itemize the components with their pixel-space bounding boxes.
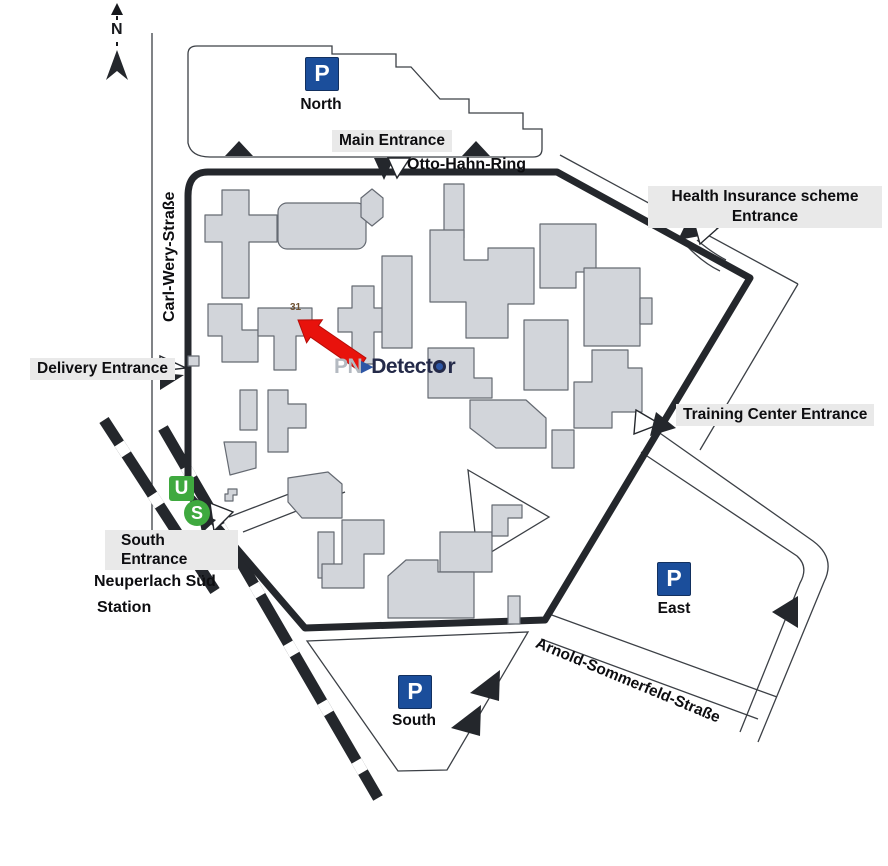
label-main-entrance: Main Entrance xyxy=(332,130,452,152)
building xyxy=(440,532,492,572)
building xyxy=(552,430,574,468)
building xyxy=(470,400,546,448)
label-station: Station xyxy=(97,598,151,618)
parking-icon-south: P xyxy=(398,675,432,709)
logo-pn: PN xyxy=(334,355,362,378)
logo-o-dot-icon xyxy=(433,360,446,373)
label-health-insurance-line2: Entrance xyxy=(655,207,875,227)
pndetector-logo: PN▶Detectr xyxy=(334,355,455,379)
campus-map: N Carl-Wery-Straße Main Entrance Otto-Ha… xyxy=(0,0,888,866)
parking-label-south: South xyxy=(378,712,450,730)
building xyxy=(225,489,237,501)
label-south-entrance-line2: Entrance xyxy=(121,550,231,569)
label-delivery-entrance: Delivery Entrance xyxy=(30,358,175,380)
label-health-insurance-entrance: Health Insurance scheme Entrance xyxy=(648,186,882,228)
building xyxy=(640,298,652,324)
building xyxy=(382,256,412,348)
building xyxy=(574,350,642,428)
label-health-insurance-line1: Health Insurance scheme xyxy=(655,187,875,207)
building xyxy=(508,596,520,624)
ubahn-icon: U xyxy=(169,476,194,501)
triangle-marker xyxy=(772,596,798,628)
parking-label-east: East xyxy=(638,600,710,618)
label-neuperlach-sued: Neuperlach Süd xyxy=(94,572,216,592)
logo-r: r xyxy=(447,355,455,378)
training-entrance-arrow xyxy=(650,412,676,436)
compass-north-arrow xyxy=(106,3,128,80)
building xyxy=(361,189,383,226)
parking-label-north: North xyxy=(285,96,357,114)
parking-icon-east: P xyxy=(657,562,691,596)
building xyxy=(524,320,568,390)
sbahn-icon: S xyxy=(184,500,210,526)
street-label-otto-hahn-ring: Otto-Hahn-Ring xyxy=(407,155,526,175)
label-south-entrance: South Entrance xyxy=(105,530,238,570)
building xyxy=(584,268,640,346)
building-31 xyxy=(258,308,312,370)
compass-north-label: N xyxy=(111,21,123,39)
building xyxy=(224,442,256,475)
building xyxy=(268,390,306,452)
street-label-carl-wery-strasse: Carl-Wery-Straße xyxy=(160,192,180,322)
building xyxy=(208,304,258,362)
building-number-31: 31 xyxy=(290,302,301,313)
logo-detect: Detect xyxy=(371,355,432,378)
building xyxy=(240,390,257,430)
building xyxy=(278,203,366,249)
building xyxy=(188,356,199,366)
building xyxy=(205,190,277,298)
label-training-center-entrance: Training Center Entrance xyxy=(676,404,874,426)
building xyxy=(288,472,342,518)
parking-icon-north: P xyxy=(305,57,339,91)
label-south-entrance-line1: South xyxy=(121,531,231,550)
building xyxy=(430,230,534,338)
